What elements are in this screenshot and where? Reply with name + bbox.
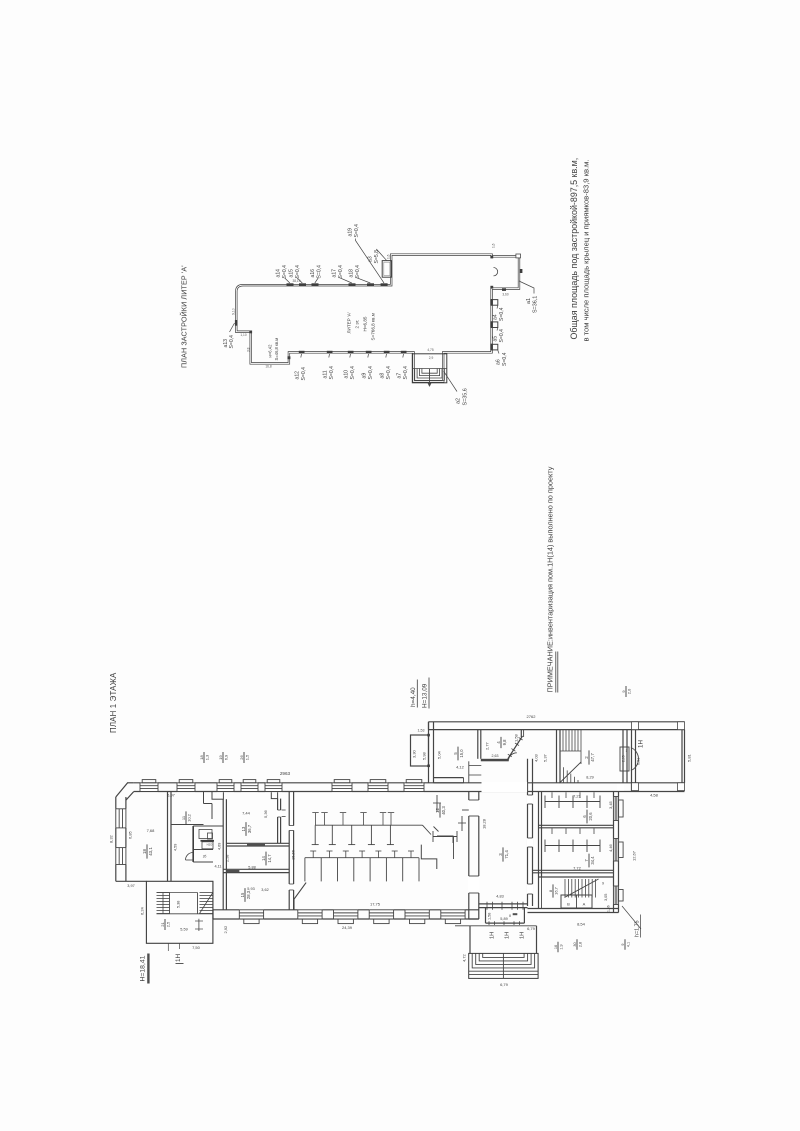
svg-text:S=36,1: S=36,1 [533, 296, 539, 313]
svg-text:6,9: 6,9 [224, 754, 229, 760]
svg-text:12: 12 [435, 808, 440, 813]
svg-text:40,3: 40,3 [441, 806, 446, 815]
svg-text:1Н: 1Н [520, 932, 526, 939]
svg-text:5,81: 5,81 [687, 753, 692, 762]
svg-text:а6: а6 [496, 359, 502, 365]
svg-text:а11: а11 [323, 370, 329, 378]
svg-text:1Н: 1Н [505, 932, 511, 939]
svg-text:3,62: 3,62 [261, 888, 268, 892]
svg-text:а1: а1 [526, 298, 532, 304]
svg-text:7,21: 7,21 [573, 794, 582, 799]
svg-text:2,5: 2,5 [166, 921, 171, 927]
svg-text:4,59: 4,59 [174, 844, 178, 851]
svg-text:ПРИМЕЧАНИЕ:инвентаризация пом.: ПРИМЕЧАНИЕ:инвентаризация пом.1Н(14) вып… [546, 466, 555, 692]
svg-text:1Н: 1Н [490, 932, 496, 939]
svg-text:1,9: 1,9 [559, 944, 563, 949]
svg-text:3,45: 3,45 [608, 800, 613, 809]
svg-text:10,2: 10,2 [187, 813, 192, 822]
svg-text:1Н: 1Н [175, 953, 182, 962]
svg-text:19: 19 [218, 755, 223, 760]
svg-text:14,7: 14,7 [267, 854, 272, 863]
svg-text:2762: 2762 [527, 714, 537, 719]
svg-text:Н=13,09: Н=13,09 [422, 683, 429, 708]
svg-text:16,8: 16,8 [265, 365, 271, 369]
svg-text:9: 9 [602, 882, 604, 886]
svg-text:S=0,4: S=0,4 [295, 265, 301, 279]
svg-text:5,59: 5,59 [180, 928, 187, 932]
svg-text:17,75: 17,75 [370, 902, 381, 907]
svg-text:ПЛАН 1 ЭТАЖА: ПЛАН 1 ЭТАЖА [109, 672, 118, 733]
svg-text:6,85: 6,85 [128, 830, 133, 839]
svg-text:2 эт.: 2 эт. [355, 319, 360, 328]
svg-text:6,79: 6,79 [500, 982, 509, 987]
svg-text:Н=6,85: Н=6,85 [363, 316, 368, 331]
svg-text:Н=18,41: Н=18,41 [140, 955, 147, 981]
svg-text:4,69: 4,69 [218, 843, 222, 850]
svg-text:18: 18 [142, 849, 147, 854]
svg-text:4,11: 4,11 [214, 865, 221, 869]
svg-text:S=0,4: S=0,4 [386, 366, 392, 380]
svg-text:1,3: 1,3 [205, 754, 210, 760]
svg-text:14: 14 [261, 856, 266, 861]
svg-text:4,75: 4,75 [427, 348, 433, 352]
svg-text:А: А [583, 902, 586, 907]
svg-text:1,5: 1,5 [245, 754, 250, 760]
svg-text:4,58: 4,58 [650, 793, 659, 798]
svg-text:2,9: 2,9 [429, 356, 434, 360]
svg-text:24,39: 24,39 [342, 925, 353, 930]
svg-text:а10: а10 [344, 370, 350, 379]
svg-text:1,6: 1,6 [492, 243, 496, 248]
svg-text:43,1: 43,1 [148, 847, 153, 856]
svg-text:а5: а5 [493, 336, 499, 342]
svg-text:h=4,40: h=4,40 [410, 687, 417, 707]
svg-text:15,66: 15,66 [291, 849, 296, 860]
svg-text:а7: а7 [397, 373, 403, 379]
svg-text:3,60: 3,60 [502, 293, 508, 297]
svg-text:S=0,4: S=0,4 [499, 329, 505, 343]
svg-text:15: 15 [240, 892, 245, 897]
svg-text:2,63: 2,63 [492, 754, 499, 758]
svg-text:1,36: 1,36 [607, 905, 611, 912]
svg-text:S=0,4: S=0,4 [368, 366, 374, 380]
svg-text:36,7: 36,7 [247, 824, 252, 833]
svg-text:Н2О: Н2О [207, 843, 214, 847]
svg-text:1,58: 1,58 [488, 913, 492, 920]
svg-text:9,10: 9,10 [232, 308, 236, 315]
svg-text:2,8: 2,8 [578, 942, 582, 947]
svg-text:а4: а4 [493, 314, 499, 320]
svg-text:S=46,8 кв.м: S=46,8 кв.м [274, 338, 279, 361]
svg-text:5,98: 5,98 [422, 751, 427, 760]
svg-text:3,05: 3,05 [604, 894, 608, 901]
svg-text:4,83: 4,83 [496, 895, 503, 899]
svg-text:71,4: 71,4 [504, 850, 509, 859]
svg-text:В: В [567, 902, 570, 907]
svg-text:S=0,4: S=0,4 [338, 265, 344, 279]
svg-text:3,30: 3,30 [412, 749, 417, 758]
svg-text:S=0,4: S=0,4 [316, 265, 322, 279]
svg-text:5,89: 5,89 [500, 917, 507, 921]
svg-text:4,46: 4,46 [608, 843, 613, 852]
svg-text:в том числе площадь крылец и п: в том числе площадь крылец и приямков-83… [582, 160, 591, 342]
svg-text:2963: 2963 [280, 771, 291, 776]
svg-text:21: 21 [160, 922, 165, 927]
svg-text:5,93: 5,93 [247, 887, 254, 891]
svg-text:1,6: 1,6 [387, 254, 391, 259]
svg-text:2,0: 2,0 [627, 688, 632, 694]
svg-text:а2: а2 [456, 398, 462, 404]
svg-text:а9: а9 [362, 373, 368, 379]
svg-text:8,29: 8,29 [586, 776, 593, 780]
svg-text:8,32: 8,32 [109, 834, 114, 843]
svg-text:28,3: 28,3 [246, 890, 251, 899]
svg-text:26: 26 [239, 755, 244, 760]
svg-text:S=0,4: S=0,4 [350, 366, 356, 380]
svg-text:S=766,8 кв.м: S=766,8 кв.м [371, 313, 376, 340]
svg-text:2,92: 2,92 [223, 925, 228, 934]
svg-text:4,1: 4,1 [626, 942, 630, 947]
svg-text:12,67: 12,67 [632, 850, 637, 861]
svg-text:4,12: 4,12 [456, 765, 465, 770]
svg-text:30: 30 [573, 942, 577, 946]
svg-text:а12: а12 [295, 371, 301, 380]
svg-text:1,10: 1,10 [240, 333, 246, 337]
svg-text:1Н: 1Н [638, 740, 645, 748]
svg-text:47,7: 47,7 [590, 753, 595, 762]
svg-text:ЛИТЕР 'А': ЛИТЕР 'А' [347, 312, 352, 333]
svg-text:16,7: 16,7 [554, 886, 559, 895]
svg-text:S=0,4: S=0,4 [329, 366, 335, 380]
svg-text:S=0,4: S=0,4 [301, 367, 307, 381]
svg-text:5,36: 5,36 [263, 809, 268, 818]
svg-text:S=0,4: S=0,4 [403, 366, 409, 380]
svg-text:н=6,42: н=6,42 [268, 344, 273, 358]
svg-text:S=0,4: S=0,4 [355, 265, 361, 279]
svg-text:6,24: 6,24 [140, 906, 145, 915]
svg-text:S=0,4: S=0,4 [282, 265, 288, 279]
svg-text:1: 1 [626, 749, 628, 753]
svg-text:S=0,4: S=0,4 [354, 224, 360, 238]
svg-text:13: 13 [241, 826, 246, 831]
svg-text:7,68: 7,68 [147, 828, 156, 833]
svg-text:а3: а3 [368, 256, 374, 262]
svg-text:S=0,4: S=0,4 [499, 307, 505, 321]
svg-text:а19: а19 [347, 228, 353, 237]
svg-text:3,8: 3,8 [247, 347, 251, 352]
svg-text:5,38: 5,38 [177, 901, 181, 908]
svg-text:h=1,75: h=1,75 [635, 920, 641, 937]
svg-text:18: 18 [199, 755, 204, 760]
svg-text:а15: а15 [288, 269, 294, 278]
svg-text:а18: а18 [348, 269, 354, 278]
svg-text:2,05: 2,05 [622, 755, 626, 762]
svg-text:7,44: 7,44 [242, 811, 251, 816]
svg-text:9: 9 [621, 943, 625, 945]
svg-text:S=35,6: S=35,6 [463, 388, 469, 405]
svg-text:1,53: 1,53 [418, 729, 425, 733]
svg-text:ПЛАН ЗАСТРОЙКИ ЛИТЕР 'А': ПЛАН ЗАСТРОЙКИ ЛИТЕР 'А' [180, 265, 189, 368]
svg-text:4,03: 4,03 [534, 753, 539, 762]
svg-text:1,58: 1,58 [514, 733, 519, 742]
svg-text:15,0: 15,0 [459, 749, 464, 758]
svg-text:7,72: 7,72 [573, 866, 582, 871]
svg-text:5,04: 5,04 [437, 750, 442, 759]
svg-text:2,77: 2,77 [485, 741, 490, 750]
svg-text:3,97: 3,97 [127, 884, 134, 888]
svg-text:S=0,4: S=0,4 [229, 335, 235, 349]
svg-text:а16: а16 [310, 269, 316, 278]
svg-text:2б: 2б [203, 855, 207, 859]
svg-text:5,88: 5,88 [248, 865, 255, 869]
svg-text:4,72: 4,72 [462, 953, 467, 962]
svg-text:а8: а8 [380, 373, 386, 379]
svg-text:7,50: 7,50 [192, 945, 201, 950]
svg-text:II: II [509, 914, 511, 918]
svg-text:6,79: 6,79 [527, 926, 536, 931]
svg-text:6,91: 6,91 [637, 758, 641, 765]
svg-text:5,37: 5,37 [543, 753, 548, 762]
svg-text:20,6: 20,6 [588, 812, 593, 821]
svg-text:а17: а17 [331, 269, 337, 278]
svg-text:18,28: 18,28 [482, 818, 487, 829]
svg-text:8,54: 8,54 [577, 922, 586, 927]
svg-text:а14: а14 [276, 269, 282, 278]
svg-text:6,97: 6,97 [167, 793, 176, 798]
svg-text:16: 16 [554, 945, 558, 949]
svg-text:34,4: 34,4 [590, 856, 595, 865]
svg-text:S=0,4: S=0,4 [502, 352, 508, 366]
svg-text:2,58: 2,58 [226, 855, 230, 862]
svg-text:Общая площадь под застройкой-8: Общая площадь под застройкой-897,5 кв.м, [569, 158, 579, 340]
svg-text:38,10: 38,10 [293, 279, 301, 283]
svg-text:9,8: 9,8 [502, 739, 507, 745]
